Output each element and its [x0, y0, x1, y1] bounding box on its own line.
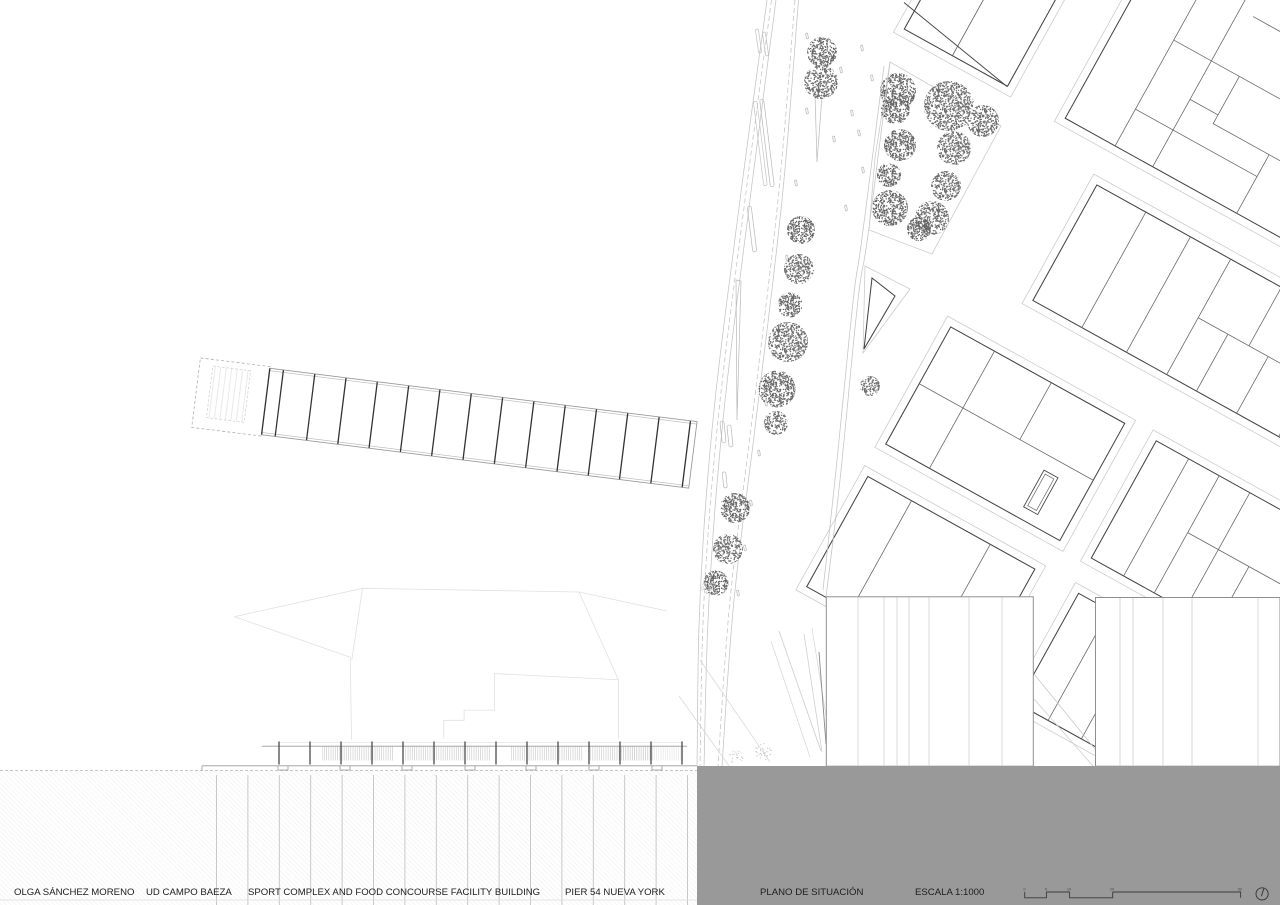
svg-text:OLGA SÁNCHEZ MORENO: OLGA SÁNCHEZ MORENO	[14, 887, 134, 898]
svg-text:5: 5	[1045, 888, 1047, 892]
svg-text:20: 20	[1110, 888, 1114, 892]
svg-text:SPORT COMPLEX AND FOOD CONCOUR: SPORT COMPLEX AND FOOD CONCOURSE FACILIT…	[248, 887, 540, 898]
svg-text:PIER 54 NUEVA YORK: PIER 54 NUEVA YORK	[565, 887, 665, 898]
svg-text:PLANO DE SITUACIÓN: PLANO DE SITUACIÓN	[760, 887, 863, 898]
svg-text:10: 10	[1067, 888, 1071, 892]
svg-text:UD CAMPO BAEZA: UD CAMPO BAEZA	[146, 887, 232, 898]
svg-text:50: 50	[1238, 888, 1242, 892]
svg-text:ESCALA 1:1000: ESCALA 1:1000	[915, 887, 984, 898]
svg-text:0: 0	[1024, 888, 1026, 892]
